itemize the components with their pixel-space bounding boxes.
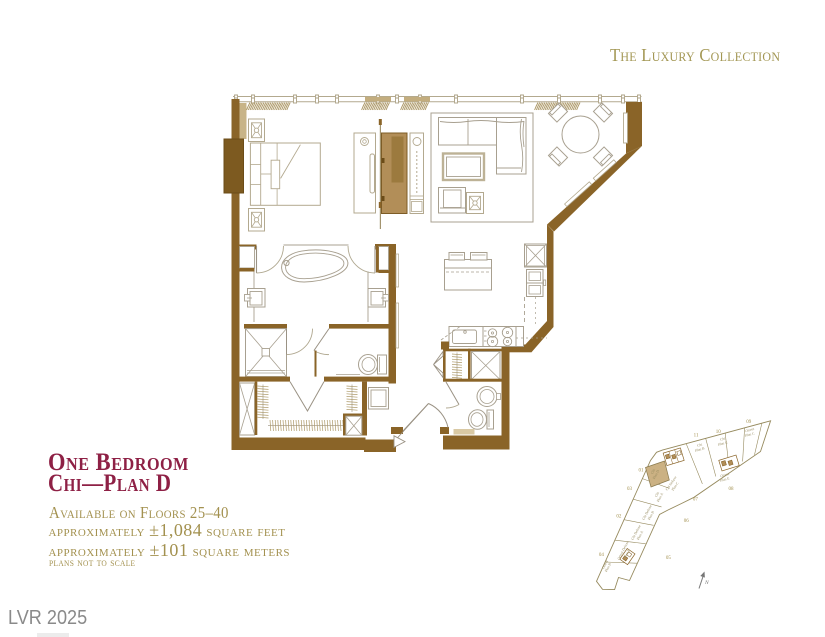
svg-text:11: 11: [694, 433, 699, 438]
svg-text:01: 01: [639, 469, 645, 474]
svg-text:07: 07: [693, 498, 699, 503]
svg-text:09: 09: [746, 420, 752, 425]
svg-text:04: 04: [599, 553, 605, 558]
svg-text:N: N: [704, 580, 709, 586]
svg-text:02: 02: [616, 515, 622, 520]
svg-text:03: 03: [627, 487, 633, 492]
svg-text:10: 10: [716, 430, 722, 435]
svg-text:05: 05: [666, 556, 672, 561]
svg-text:08: 08: [729, 487, 735, 492]
svg-text:06: 06: [684, 519, 690, 524]
